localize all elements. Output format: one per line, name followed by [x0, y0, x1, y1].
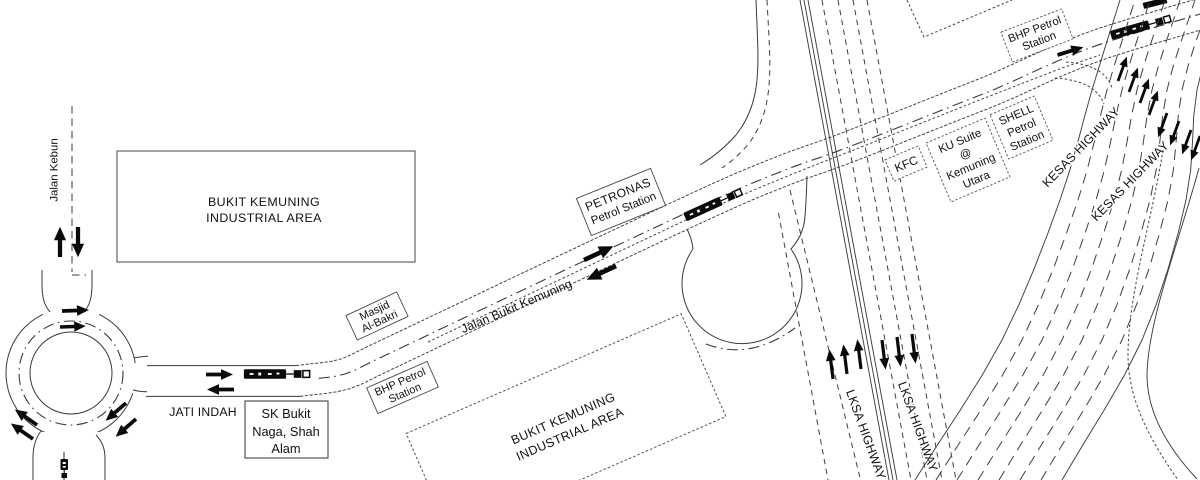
svg-text:Alam: Alam [271, 441, 300, 456]
svg-text:INDUSTRIAL AREA: INDUSTRIAL AREA [206, 211, 322, 225]
svg-text:BUKIT KEMUNING: BUKIT KEMUNING [208, 195, 320, 209]
svg-text:Naga, Shah: Naga, Shah [252, 424, 320, 439]
svg-text:JATI INDAH: JATI INDAH [169, 405, 236, 419]
svg-text:SK Bukit: SK Bukit [261, 406, 311, 421]
svg-text:Jalan Kebun: Jalan Kebun [49, 138, 61, 201]
